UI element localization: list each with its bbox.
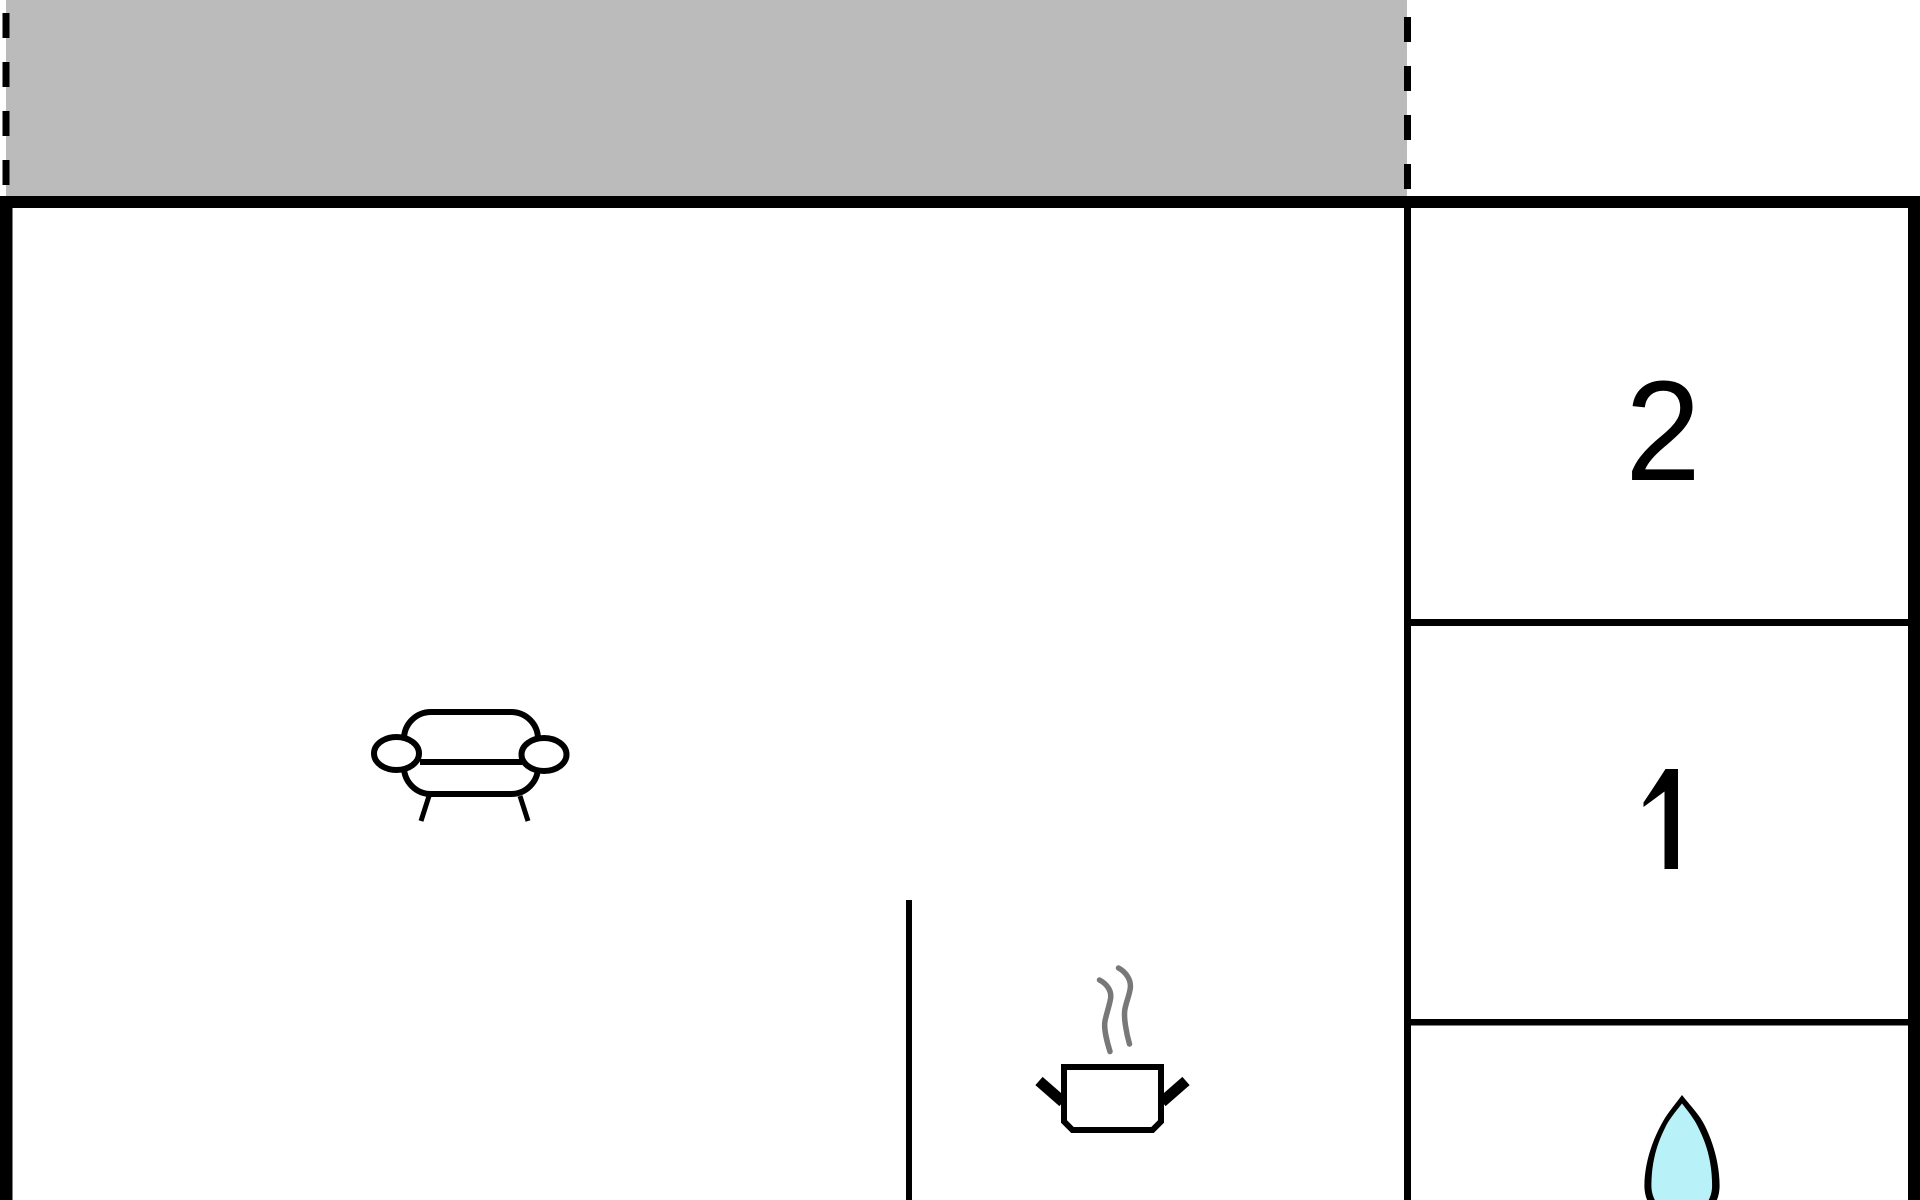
svg-text:2: 2 [1625,352,1701,511]
